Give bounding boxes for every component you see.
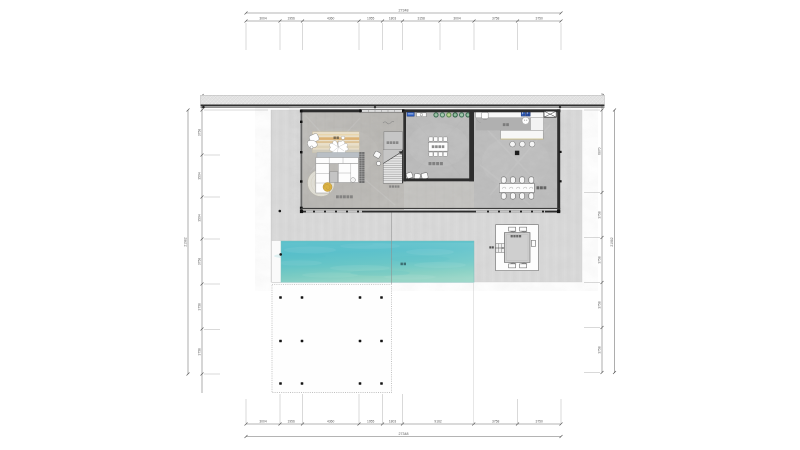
svg-text:3004: 3004 [453,16,461,20]
svg-text:1803: 1803 [389,419,397,423]
svg-text:1955: 1955 [367,16,375,20]
svg-text:1956: 1956 [288,16,296,20]
svg-text:3758: 3758 [197,348,201,356]
svg-text:3004: 3004 [259,16,267,20]
svg-text:3758: 3758 [197,258,201,266]
svg-text:3004: 3004 [259,419,267,423]
svg-text:3758: 3758 [597,346,601,354]
svg-text:3758: 3758 [197,129,201,137]
svg-text:3758: 3758 [492,16,500,20]
svg-text:3750: 3750 [536,16,544,20]
svg-text:21982: 21982 [610,237,614,246]
svg-text:9162: 9162 [434,419,442,423]
svg-text:3758: 3758 [597,301,601,309]
svg-text:27348: 27348 [399,8,409,12]
svg-text:3750: 3750 [536,419,544,423]
svg-text:3758: 3758 [597,256,601,264]
svg-text:3158: 3158 [418,16,426,20]
svg-text:21982: 21982 [183,237,187,246]
svg-text:3504: 3504 [197,172,201,180]
svg-text:1955: 1955 [367,419,375,423]
svg-text:1956: 1956 [288,419,296,423]
svg-text:1803: 1803 [389,16,397,20]
svg-text:4360: 4360 [327,16,335,20]
svg-text:3758: 3758 [197,303,201,311]
svg-text:27348: 27348 [399,432,409,436]
svg-text:3504: 3504 [197,214,201,222]
svg-text:6870: 6870 [597,147,601,155]
svg-text:3758: 3758 [597,211,601,219]
svg-text:3758: 3758 [492,419,500,423]
svg-text:4360: 4360 [327,419,335,423]
